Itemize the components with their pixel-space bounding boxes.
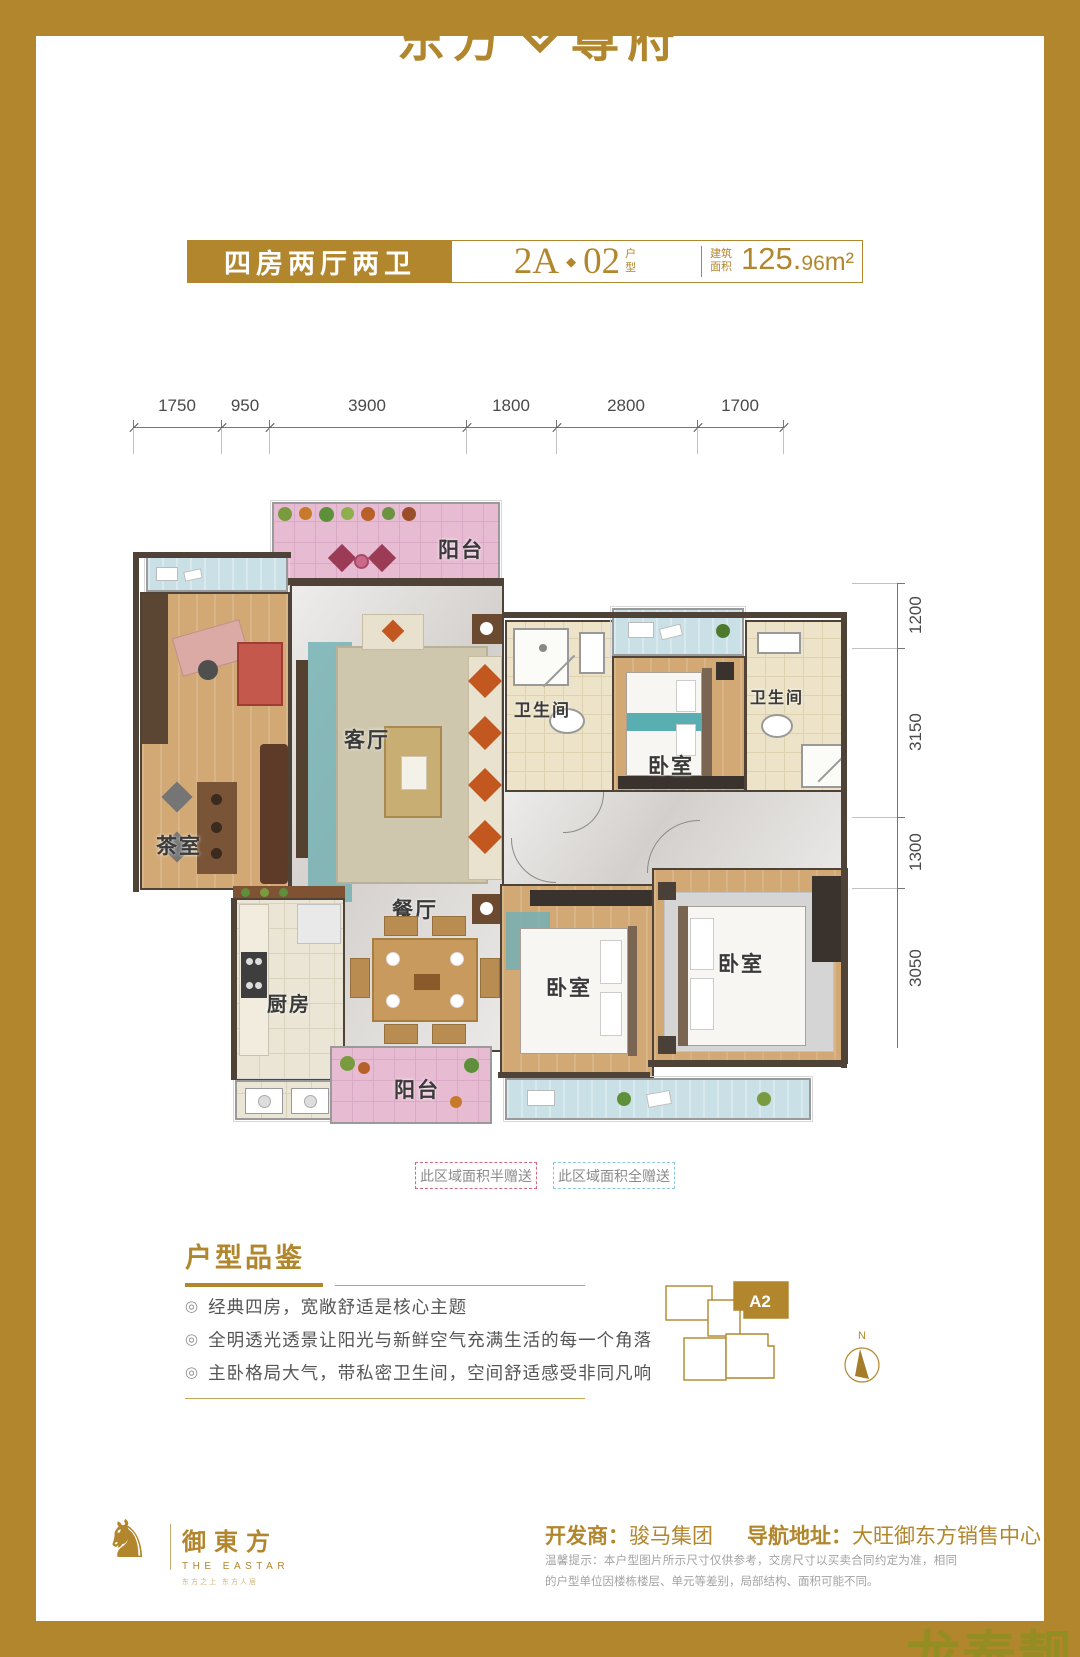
side-table [472,614,502,644]
dim-ext [852,648,897,649]
pillow [646,1090,672,1108]
laundry-ledge [235,1080,345,1120]
pillow [690,978,714,1030]
plant-icon [450,1096,462,1108]
feature-item: ◎ 全明透光透景让阳光与新鲜空气充满生活的每一个角落 [185,1329,652,1351]
plant-icon [617,1092,631,1106]
area-unit: m² [825,248,854,277]
pillow [676,680,696,712]
dim-ext [852,888,897,889]
feature-text: 经典四房，宽敞舒适是核心主题 [208,1296,467,1318]
compass-icon: N [838,1328,888,1388]
developer-line: 开发商：骏马集团 [545,1520,713,1550]
tagline-right: 一宅御东方 [546,0,646,21]
wardrobe [530,890,652,906]
stool [161,781,192,812]
unit-code-a: 2A [514,240,559,283]
ledge-deco [156,567,178,581]
room-bedroom-2: 卧室 [500,884,654,1078]
wall [231,898,237,1080]
shower [801,744,843,788]
dim-top-3900: 3900 [322,396,412,416]
wall [133,556,139,892]
ac-ledge [146,556,288,592]
logo-divider [170,1524,171,1570]
developer-value: 骏马集团 [629,1525,713,1548]
bottom-logo-tagline: 东方之上 东方人居 [182,1577,289,1587]
nav-label: 导航地址： [747,1525,852,1548]
bullet-marker-icon: ◎ [185,1329,198,1351]
washer-unit [291,1088,329,1114]
dim-ext [221,428,222,454]
tagline-left: 双园藏天下 [434,0,534,21]
room-label-tea: 茶室 [156,830,202,860]
armchair [362,614,424,650]
compass-north-label: N [858,1330,866,1342]
disclaimer-text: 温馨提示：本户型图片所示尺寸仅供参考，交房尺寸以买卖合同约定为准，相同的户型单位… [545,1551,957,1594]
area-decimals: 96 [801,252,824,277]
pillow [600,940,622,984]
sofa [260,744,288,884]
feature-text: 主卧格局大气，带私密卫生间，空间舒适感受非同凡响 [208,1362,652,1384]
gifted-ledge [505,1078,811,1120]
wall [502,612,847,618]
dim-ext [783,428,784,454]
tv-console [296,660,308,858]
nightstand [658,1036,676,1054]
room-tea: 茶室 [140,592,290,890]
dim-top-1800: 1800 [466,396,556,416]
feature-text: 全明透光透景让阳光与新鲜空气充满生活的每一个角落 [208,1329,652,1351]
features-rule-bottom [185,1398,585,1399]
room-label-bathroom-2: 卫生间 [750,684,804,708]
unit-code: 2A ◆ 02 户型 [452,241,700,282]
unit-type-badge: 四房两厅两卫 [188,241,452,282]
bottom-logo-cn: 御東方 [182,1522,289,1557]
pillow [600,992,622,1036]
dining-chair [384,1024,418,1044]
dim-right-1300: 1300 [906,810,926,894]
balcony-table [354,554,369,569]
bullet-marker-icon: ◎ [185,1362,198,1384]
room-label-bedroom-2: 卧室 [546,972,592,1002]
dining-chair [350,958,370,998]
tagline-bars-icon: ‖ [417,3,422,18]
room-balcony-bottom: 阳台 [330,1046,492,1124]
feature-item: ◎ 主卧格局大气，带私密卫生间，空间舒适感受非同凡响 [185,1362,652,1384]
pillow [628,622,654,638]
shower [513,628,569,686]
headboard [628,926,637,1056]
nav-line: 导航地址：大旺御东方销售中心 [747,1520,1041,1550]
dim-ext [852,817,897,818]
brand-tagline: ‖ 双园藏天下 一宅御东方 ‖ [0,0,1080,21]
unit-code-diamond-icon: ◆ [566,254,576,270]
room-label-bedroom-3: 卧室 [718,948,764,978]
dining-table [372,938,478,1022]
sofa [468,656,502,880]
pillow [659,624,683,641]
watermark-text: 龙泰靓居 [906,1612,1080,1657]
dining-chair [480,958,500,998]
balcony-chair [328,544,356,572]
headboard [678,906,688,1046]
nightstand [716,662,734,680]
dim-right-1200: 1200 [906,573,926,657]
dim-top-950: 950 [200,396,290,416]
plant-icon [464,1058,479,1073]
bookshelf [142,594,168,744]
desk-chair [198,660,218,680]
rug [237,642,283,706]
dim-right-3150: 3150 [906,690,926,774]
room-label-balcony-bottom: 阳台 [394,1074,440,1104]
fridge [297,904,341,944]
unit-code-b: 02 [583,240,620,283]
pillow [527,1090,555,1106]
nightstand [658,882,676,900]
plant-icon [340,1056,355,1071]
bullet-marker-icon: ◎ [185,1296,198,1318]
room-bedroom-3: 卧室 [652,868,848,1064]
floor-plan: 阳台 茶室 [133,460,847,1140]
bottom-logo-text: 御東方 THE EASTAR 东方之上 东方人居 [182,1522,289,1587]
headboard [702,668,712,780]
room-bedroom-1: 卧室 [612,656,746,792]
tea-table [197,782,237,874]
tagline-rule-right [675,10,767,11]
room-bathroom-2: 卫生间 [745,620,847,792]
ledge-deco [183,568,203,582]
developer-label: 开发商： [545,1525,629,1548]
legend-half-gift: 此区域面积半赠送 [415,1162,537,1189]
feature-item: ◎ 经典四房，宽敞舒适是核心主题 [185,1296,652,1318]
features-title: 户型品鉴 [185,1236,305,1275]
keyplan-unit-label: A2 [749,1292,771,1311]
dining-chair [384,916,418,936]
poster-page: 东方 尊府 ‖ 双园藏天下 一宅御东方 ‖ 四房两厅两卫 2A ◆ 02 户型 … [0,0,1080,1657]
coffee-table [384,726,442,818]
features-underline-thin [335,1285,585,1286]
dim-ext [269,428,270,454]
dining-chair [432,916,466,936]
plant-icon [358,1062,370,1074]
room-label-bedroom-1: 卧室 [648,750,694,780]
room-bathroom-1: 卫生间 [505,620,615,792]
wall [288,578,504,585]
dim-top-2800: 2800 [581,396,671,416]
dining-chair [432,1024,466,1044]
dim-top-1700: 1700 [695,396,785,416]
room-label-living: 客厅 [344,724,390,754]
wall [648,1060,847,1067]
legend-full-gift: 此区域面积全赠送 [553,1162,675,1189]
footer-info: 开发商：骏马集团 导航地址：大旺御东方销售中心 [545,1520,1041,1550]
title-bar: 四房两厅两卫 2A ◆ 02 户型 建筑面积 125. 96 m² [187,240,863,283]
wardrobe [812,876,844,962]
tagline-bars-icon: ‖ [658,3,663,18]
dim-ext [466,428,467,454]
pillow [690,918,714,970]
dim-line-top [133,427,783,428]
wall [133,552,291,558]
built-area: 建筑面积 125. 96 m² [702,241,862,282]
balcony-chair [368,544,396,572]
bottom-logo-en: THE EASTAR [182,1561,289,1572]
features-underline-thick [185,1283,323,1287]
dim-ext [133,428,134,454]
room-label-balcony-top: 阳台 [438,534,484,564]
stove [241,952,267,998]
dim-ext [556,428,557,454]
room-kitchen: 厨房 [233,898,345,1080]
area-label: 建筑面积 [710,248,735,277]
sink-unit [245,1088,283,1114]
area-value: 125. [741,241,801,277]
sink [757,632,801,654]
dim-ext [697,428,698,454]
planter-icons [278,507,416,522]
plant-icon [757,1092,771,1106]
horse-logo-icon: ♞ [104,1514,151,1566]
wall [841,612,847,1068]
tagline-rule-left [313,10,405,11]
plant-icon [716,624,730,638]
unit-code-suffix: 户型 [625,248,638,274]
diamond-seal-icon [522,17,559,54]
side-table [472,894,502,924]
sink [579,632,605,674]
room-label-kitchen: 厨房 [267,988,311,1017]
toilet [761,714,793,738]
features-list: ◎ 经典四房，宽敞舒适是核心主题 ◎ 全明透光透景让阳光与新鲜空气充满生活的每一… [185,1296,652,1395]
room-label-bathroom-1: 卫生间 [514,696,571,721]
nav-value: 大旺御东方销售中心 [852,1525,1041,1548]
dim-right-3050: 3050 [906,926,926,1010]
room-balcony-top: 阳台 [272,502,500,586]
dim-ext [852,583,897,584]
wall [498,1072,650,1078]
dim-line-right [897,583,898,1048]
